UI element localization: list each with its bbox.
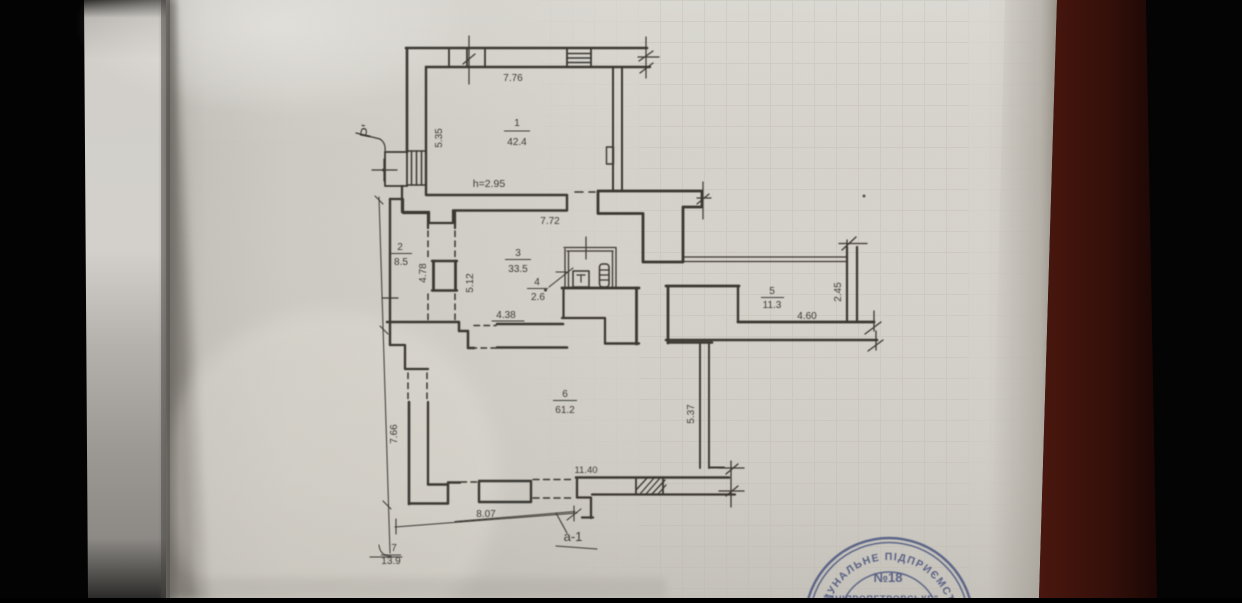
svg-text:3: 3	[515, 248, 521, 259]
svg-text:№18: №18	[874, 570, 903, 585]
svg-text:6: 6	[562, 389, 568, 400]
svg-text:42.4: 42.4	[507, 137, 527, 148]
svg-text:2.6: 2.6	[531, 292, 545, 303]
svg-text:7.76: 7.76	[503, 73, 523, 84]
svg-text:5.35: 5.35	[434, 128, 445, 148]
svg-text:8.5: 8.5	[394, 257, 408, 268]
svg-text:h=2.95: h=2.95	[473, 178, 506, 190]
svg-text:7.66: 7.66	[389, 424, 400, 444]
svg-text:11.3: 11.3	[763, 300, 782, 311]
svg-text:5.37: 5.37	[686, 404, 697, 424]
svg-text:5.12: 5.12	[465, 273, 476, 293]
svg-text:a-1: a-1	[564, 529, 583, 544]
svg-text:61.2: 61.2	[555, 405, 575, 416]
svg-text:2: 2	[397, 242, 403, 253]
svg-text:2.45: 2.45	[833, 282, 844, 302]
svg-text:4.38: 4.38	[496, 310, 516, 321]
svg-text:4.60: 4.60	[797, 311, 817, 322]
svg-text:5: 5	[769, 286, 775, 297]
svg-text:7: 7	[391, 543, 397, 554]
svg-text:7.72: 7.72	[540, 216, 560, 227]
svg-text:"ДНІПРОПЕТРОВСЬКЕ": "ДНІПРОПЕТРОВСЬКЕ"	[823, 594, 939, 598]
svg-text:13.9: 13.9	[381, 556, 401, 567]
svg-text:4.78: 4.78	[418, 263, 429, 283]
svg-text:11.40: 11.40	[574, 465, 597, 476]
svg-text:8.07: 8.07	[476, 509, 496, 520]
svg-text:33.5: 33.5	[508, 264, 528, 275]
svg-text:4: 4	[534, 277, 540, 288]
svg-text:1: 1	[514, 118, 520, 129]
